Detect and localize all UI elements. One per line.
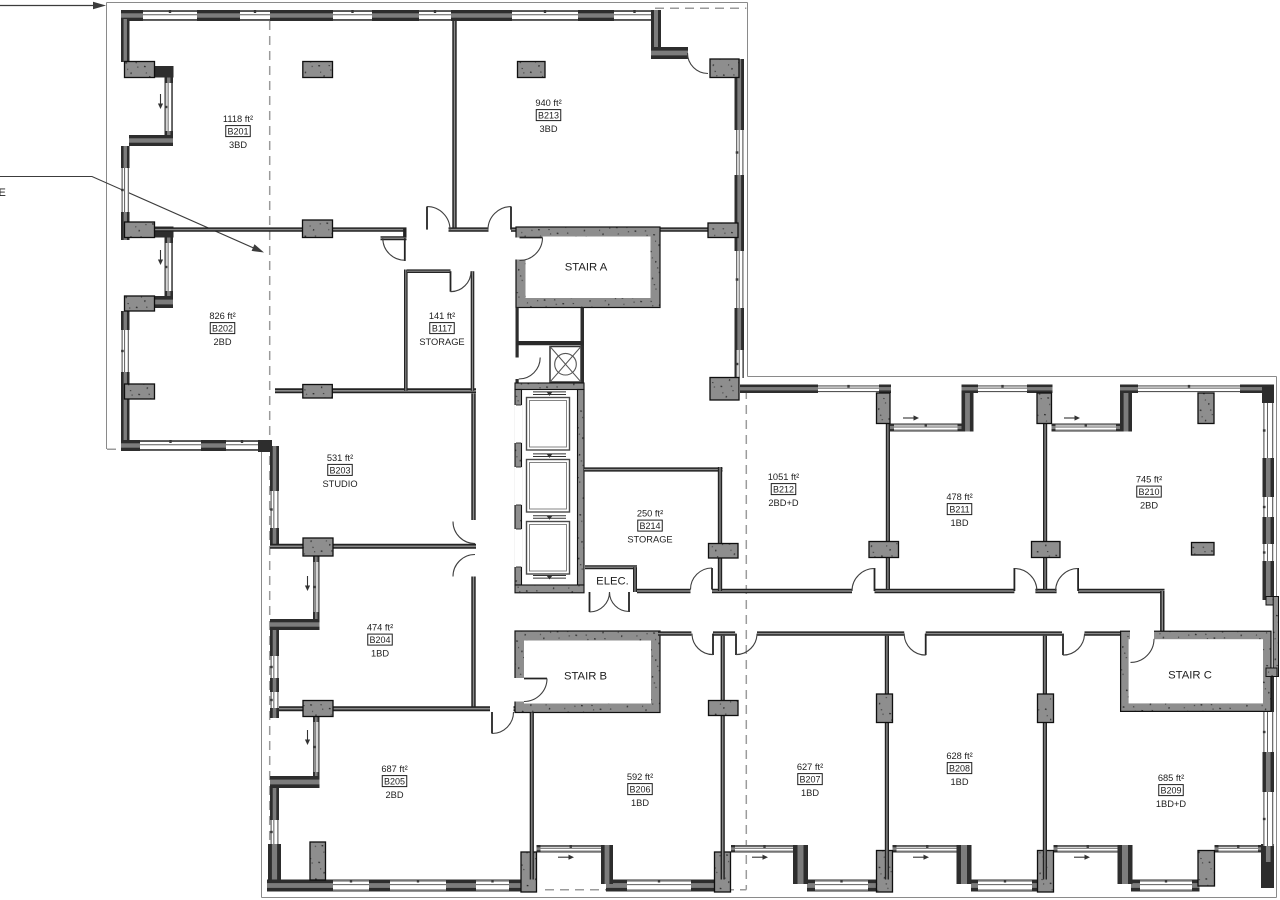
- svg-text:2BD+D: 2BD+D: [768, 498, 799, 508]
- svg-text:592 ft²: 592 ft²: [627, 772, 653, 782]
- svg-text:STAIR C: STAIR C: [1168, 670, 1212, 682]
- svg-text:B203: B203: [329, 465, 350, 475]
- svg-text:250 ft²: 250 ft²: [637, 509, 663, 519]
- svg-text:745 ft²: 745 ft²: [1136, 475, 1162, 485]
- svg-text:B204: B204: [369, 635, 390, 645]
- svg-text:1BD: 1BD: [801, 788, 819, 798]
- svg-text:3BD: 3BD: [229, 140, 247, 150]
- svg-text:2BD: 2BD: [1140, 501, 1158, 511]
- svg-text:687 ft²: 687 ft²: [381, 764, 407, 774]
- svg-text:STAIR B: STAIR B: [564, 671, 607, 683]
- svg-text:B205: B205: [384, 777, 405, 787]
- svg-text:STORAGE: STORAGE: [419, 337, 464, 347]
- svg-text:’E: ’E: [0, 187, 6, 199]
- svg-text:B202: B202: [212, 324, 233, 334]
- svg-text:2BD: 2BD: [213, 337, 231, 347]
- svg-text:3BD: 3BD: [539, 124, 557, 134]
- svg-text:1BD+D: 1BD+D: [1156, 799, 1187, 809]
- svg-text:STAIR A: STAIR A: [565, 262, 608, 274]
- svg-text:B211: B211: [949, 505, 969, 515]
- svg-text:531 ft²: 531 ft²: [327, 453, 353, 463]
- svg-text:685 ft²: 685 ft²: [1158, 773, 1184, 783]
- svg-text:1051 ft²: 1051 ft²: [768, 472, 800, 482]
- svg-text:940 ft²: 940 ft²: [535, 98, 561, 108]
- svg-text:B207: B207: [799, 775, 820, 785]
- svg-text:ELEC.: ELEC.: [596, 576, 629, 588]
- svg-text:2BD: 2BD: [385, 790, 403, 800]
- svg-text:B206: B206: [629, 785, 650, 795]
- svg-text:B210: B210: [1138, 487, 1159, 497]
- svg-text:478 ft²: 478 ft²: [946, 492, 972, 502]
- svg-text:628 ft²: 628 ft²: [946, 751, 972, 761]
- svg-text:141 ft²: 141 ft²: [429, 311, 455, 321]
- svg-text:B209: B209: [1160, 786, 1181, 796]
- svg-text:1BD: 1BD: [950, 777, 968, 787]
- svg-text:1BD: 1BD: [631, 798, 649, 808]
- svg-text:B201: B201: [227, 127, 248, 137]
- svg-text:STUDIO: STUDIO: [322, 479, 357, 489]
- svg-text:474 ft²: 474 ft²: [367, 623, 393, 633]
- svg-text:1118 ft²: 1118 ft²: [223, 114, 253, 124]
- svg-text:B208: B208: [949, 764, 970, 774]
- svg-text:B117: B117: [432, 324, 452, 334]
- svg-text:B212: B212: [773, 485, 794, 495]
- svg-text:B214: B214: [639, 521, 660, 531]
- svg-text:1BD: 1BD: [950, 518, 968, 528]
- svg-text:826 ft²: 826 ft²: [209, 311, 235, 321]
- svg-text:STORAGE: STORAGE: [627, 535, 672, 545]
- svg-text:627 ft²: 627 ft²: [797, 762, 823, 772]
- svg-text:1BD: 1BD: [371, 649, 389, 659]
- svg-text:B213: B213: [538, 111, 559, 121]
